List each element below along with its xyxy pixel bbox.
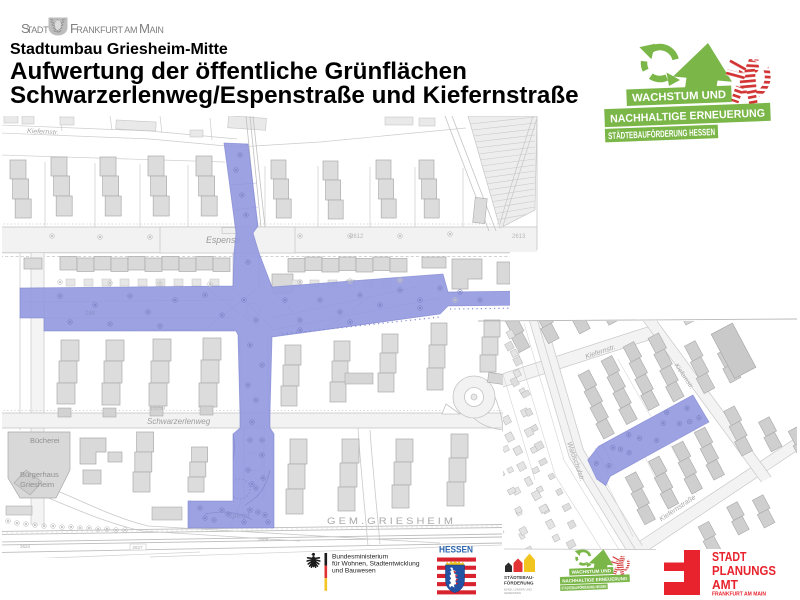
svg-text:PLANUNGS: PLANUNGS <box>712 563 776 578</box>
svg-text:G E M . G R I E S H E I M: G E M . G R I E S H E I M <box>327 516 453 526</box>
svg-text:Kiefernstr.: Kiefernstr. <box>27 128 59 137</box>
svg-text:2613: 2613 <box>512 234 526 240</box>
svg-text:HESSEN: HESSEN <box>439 545 473 555</box>
svg-text:und Bauwesen: und Bauwesen <box>332 568 376 575</box>
svg-text:Spielpl.: Spielpl. <box>228 513 251 520</box>
svg-text:2624: 2624 <box>20 544 31 549</box>
svg-text:für Wohnen, Stadtentwicklung: für Wohnen, Stadtentwicklung <box>332 561 420 568</box>
svg-text:Bücherei: Bücherei <box>30 436 60 445</box>
svg-text:288: 288 <box>85 311 96 317</box>
svg-text:AMT: AMT <box>712 577 738 592</box>
svg-text:GEMEINDEN: GEMEINDEN <box>504 591 521 595</box>
svg-text:Schwarzerlenweg: Schwarzerlenweg <box>147 417 211 426</box>
svg-text:STADT: STADT <box>712 549 747 564</box>
svg-text:2627: 2627 <box>133 545 144 550</box>
svg-text:16/50: 16/50 <box>150 406 166 412</box>
svg-text:Bundesministerium: Bundesministerium <box>332 554 389 561</box>
svg-text:Bürgerhaus: Bürgerhaus <box>20 470 59 479</box>
svg-text:2612: 2612 <box>350 234 364 240</box>
svg-text:STÄDTEBAU-: STÄDTEBAU- <box>504 574 534 580</box>
svg-text:Griesheim: Griesheim <box>20 480 54 489</box>
svg-text:FÖRDERUNG: FÖRDERUNG <box>504 580 534 586</box>
svg-text:2609: 2609 <box>258 537 269 542</box>
svg-text:FRANKFURT AM MAIN: FRANKFURT AM MAIN <box>712 591 766 597</box>
